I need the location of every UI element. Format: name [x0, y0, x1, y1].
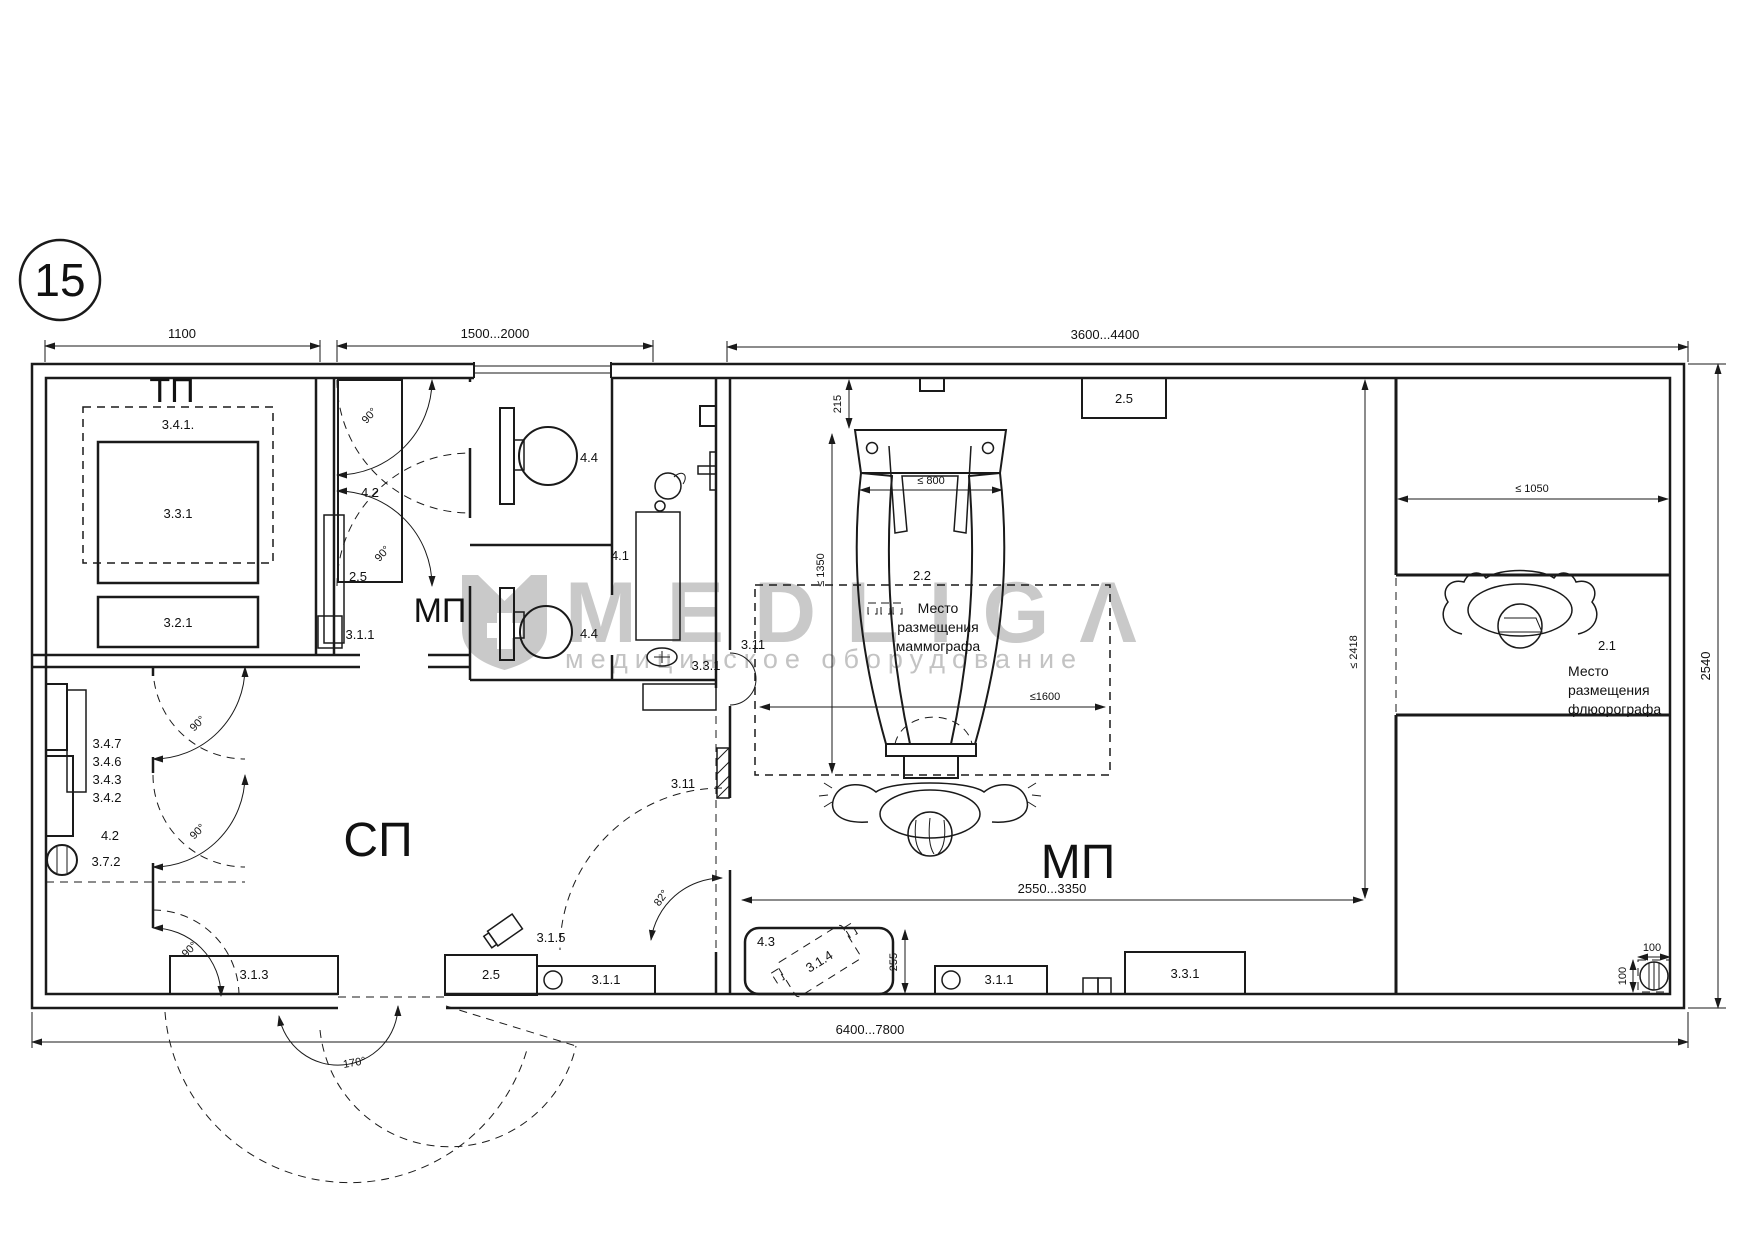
equip-label: 3.4.3 [93, 772, 122, 787]
equip-label: 3.3.1 [1171, 966, 1200, 981]
equip-label: 3.7.2 [92, 854, 121, 869]
equip-label: 3.1.3 [240, 967, 269, 982]
room-label-sp: СП [343, 814, 412, 867]
svg-text:≤ 800: ≤ 800 [917, 475, 944, 487]
equip-label: 3.1.1 [346, 627, 375, 642]
equip-label: 2.5 [482, 967, 500, 982]
equip-label: 4.4 [580, 626, 598, 641]
equip-label: 3.4.7 [93, 736, 122, 751]
floor-plan-drawing: MEDLIGΛ медицинское оборудование 15 1 [0, 0, 1755, 1240]
equip-label: 3.1.1 [985, 972, 1014, 987]
equip-label: 3.1.1 [592, 972, 621, 987]
equip-label: 4.3 [757, 934, 775, 949]
equip-label: 3.3.1 [692, 658, 721, 673]
equip-label: 2.5 [1115, 391, 1133, 406]
equip-label: 3.4.1. [162, 417, 195, 432]
svg-text:≤ 1050: ≤ 1050 [1515, 483, 1549, 495]
equip-label: 2.2 [913, 568, 931, 583]
door-label: 3.11 [671, 776, 695, 791]
sheet-number: 15 [34, 254, 85, 306]
window [474, 360, 611, 380]
note-fluorograph: флюорографа [1568, 701, 1661, 717]
equip-label: 3.4.6 [93, 754, 122, 769]
svg-text:≤1600: ≤1600 [1030, 691, 1061, 703]
svg-text:3600...4400: 3600...4400 [1071, 327, 1140, 342]
note-fluorograph: Место [1568, 663, 1609, 679]
room-label-mp: МП [1041, 836, 1115, 889]
svg-text:100: 100 [1617, 967, 1629, 985]
svg-text:≤ 2418: ≤ 2418 [1348, 635, 1360, 669]
room-label-tp: ТП [149, 372, 194, 410]
room-label-san: МП [414, 592, 467, 630]
floor-plan-sheet: MEDLIGΛ медицинское оборудование 15 1 [0, 0, 1755, 1240]
equip-label: 4.4 [580, 450, 598, 465]
equip-label: 4.2 [361, 485, 379, 500]
note-fluorograph: размещения [1568, 682, 1650, 698]
svg-text:≤ 1350: ≤ 1350 [815, 553, 827, 587]
equip-label: 3.1.5 [537, 930, 566, 945]
svg-text:маммографа: маммографа [896, 638, 981, 654]
equip-label: 4.2 [101, 828, 119, 843]
svg-text:6400...7800: 6400...7800 [836, 1022, 905, 1037]
svg-text:Место: Место [918, 600, 959, 616]
svg-text:215: 215 [832, 395, 844, 413]
svg-text:размещения: размещения [897, 619, 979, 635]
svg-text:1500...2000: 1500...2000 [461, 326, 530, 341]
equip-label: 4.1 [611, 548, 629, 563]
equip-label: 2.1 [1598, 638, 1616, 653]
svg-text:2540: 2540 [1698, 652, 1713, 681]
equip-label: 3.3.1 [164, 506, 193, 521]
equip-label: 2.5 [349, 569, 367, 584]
equip-label: 3.4.2 [93, 790, 122, 805]
equip-label: 3.2.1 [164, 615, 193, 630]
svg-text:1100: 1100 [168, 326, 196, 341]
watermark-tagline: медицинское оборудование [565, 644, 1083, 674]
door-label: 3.11 [741, 637, 765, 652]
svg-text:100: 100 [1643, 942, 1661, 954]
